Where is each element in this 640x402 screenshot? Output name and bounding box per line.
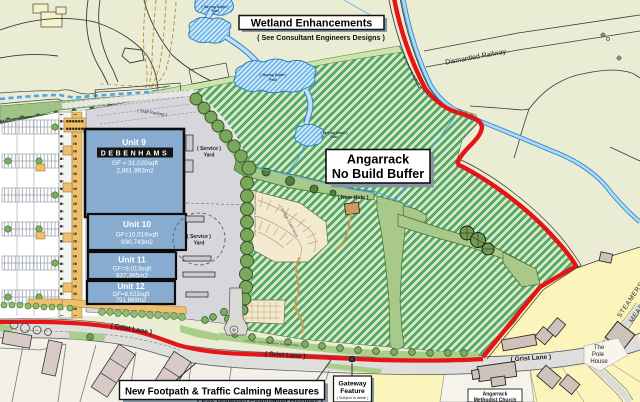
svg-text:Unit 9: Unit 9 (122, 137, 146, 147)
svg-text:( 216 Reservoir Parking Spaces: ( 216 Reservoir Parking Spaces ) (253, 192, 257, 236)
svg-text:( New Hide ): ( New Hide ) (338, 195, 369, 201)
svg-text:Pool: Pool (330, 135, 337, 139)
svg-text:No Build Buffer: No Build Buffer (332, 167, 424, 181)
svg-text:( See Highway Consultant Desig: ( See Highway Consultant Designs ) (197, 398, 324, 402)
svg-text:Pool: Pool (211, 9, 218, 13)
svg-text:( Service ): ( Service ) (197, 146, 221, 152)
svg-text:GF=9,013sqft: GF=9,013sqft (113, 266, 152, 273)
svg-text:DEBENHAMS: DEBENHAMS (101, 151, 170, 158)
svg-text:Yard: Yard (204, 153, 215, 159)
svg-text:Pool: Pool (269, 78, 276, 82)
svg-text:Pole: Pole (592, 352, 605, 358)
svg-text:( Service ): ( Service ) (187, 234, 211, 240)
svg-text:The: The (594, 345, 605, 351)
svg-text:Angarrack: Angarrack (347, 153, 410, 167)
svg-text:GF=10,018sqft: GF=10,018sqft (116, 232, 159, 239)
svg-text:Unit 10: Unit 10 (123, 219, 151, 229)
svg-text:Gateway: Gateway (339, 381, 367, 388)
svg-text:Feature: Feature (340, 388, 365, 395)
svg-text:930,743m2: 930,743m2 (121, 239, 153, 246)
svg-text:Wetland Enhancements: Wetland Enhancements (251, 17, 373, 29)
svg-text:House: House (590, 359, 608, 365)
svg-text:GF = 31,020sqft: GF = 31,020sqft (112, 160, 158, 167)
svg-text:( See Consultant Engineers Des: ( See Consultant Engineers Designs ) (257, 33, 385, 42)
svg-text:Unit 11: Unit 11 (118, 255, 146, 265)
svg-text:837,395m2: 837,395m2 (116, 273, 148, 280)
svg-text:New Footpath & Traffic Calming: New Footpath & Traffic Calming Measures (125, 387, 319, 398)
svg-text:791,869m2: 791,869m2 (116, 297, 147, 304)
svg-text:Methodist Church: Methodist Church (474, 398, 517, 402)
svg-text:( Varying Depth ): ( Varying Depth ) (260, 73, 287, 77)
svg-text:( Subject to detail ): ( Subject to detail ) (337, 396, 369, 400)
svg-text:Unit 12: Unit 12 (117, 282, 145, 291)
svg-text:2,881.863m2: 2,881.863m2 (116, 168, 154, 175)
svg-text:Yard: Yard (194, 241, 205, 247)
